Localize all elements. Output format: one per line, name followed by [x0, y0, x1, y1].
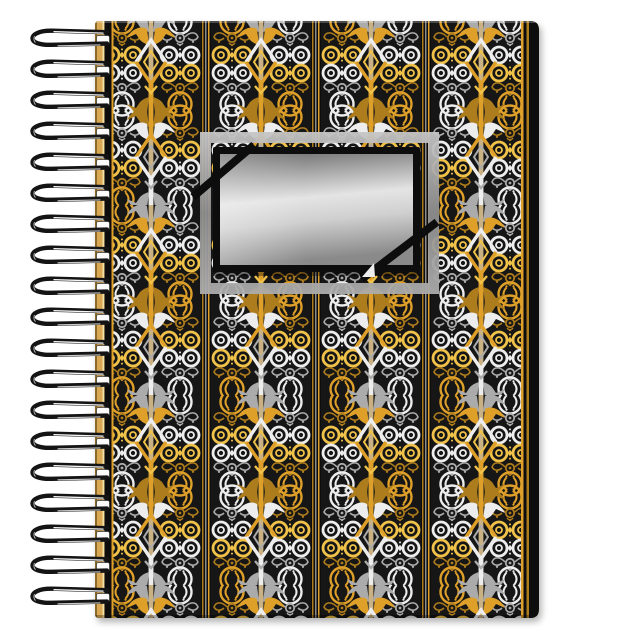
label-plate — [193, 132, 439, 294]
notebook-cover — [95, 21, 539, 618]
cover-pattern — [95, 21, 539, 618]
plate-sheen — [220, 154, 413, 265]
cover-top-highlight — [95, 21, 539, 23]
cover-bottom-shade — [95, 615, 539, 618]
product-image — [0, 0, 644, 644]
notebook-scene — [0, 0, 644, 644]
right-edge-trim — [521, 21, 539, 618]
